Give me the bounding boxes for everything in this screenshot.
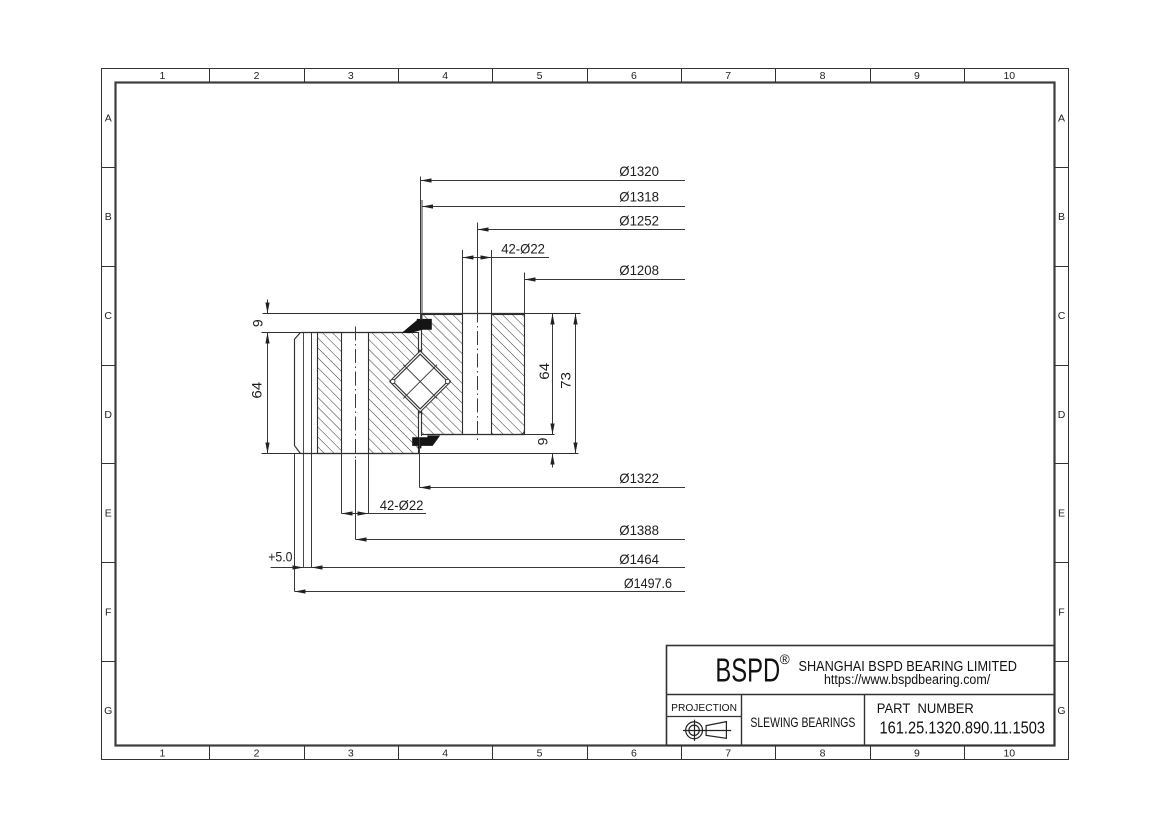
svg-text:64: 64 — [536, 363, 552, 380]
svg-text:BSPD: BSPD — [715, 653, 780, 690]
svg-text:C: C — [104, 310, 112, 322]
svg-text:2: 2 — [254, 748, 260, 760]
svg-text:1: 1 — [159, 70, 165, 82]
svg-text:161.25.1320.890.11.1503: 161.25.1320.890.11.1503 — [880, 717, 1046, 737]
svg-text:Ø1322: Ø1322 — [619, 470, 659, 486]
svg-text:PART NUMBER: PART NUMBER — [877, 701, 974, 717]
svg-text:+5.0: +5.0 — [268, 549, 292, 565]
svg-text:10: 10 — [1003, 70, 1015, 82]
svg-text:A: A — [1058, 112, 1065, 124]
svg-text:F: F — [1058, 606, 1064, 618]
svg-text:E: E — [1058, 508, 1065, 520]
svg-text:5: 5 — [537, 748, 543, 760]
svg-text:Ø1464: Ø1464 — [619, 551, 659, 567]
svg-text:5: 5 — [537, 70, 543, 82]
svg-text:8: 8 — [820, 748, 826, 760]
svg-text:9: 9 — [914, 70, 920, 82]
svg-text:B: B — [105, 211, 112, 223]
svg-text:3: 3 — [348, 748, 354, 760]
svg-text:7: 7 — [725, 70, 731, 82]
svg-text:9: 9 — [250, 319, 266, 327]
svg-text:Ø1320: Ø1320 — [619, 163, 659, 179]
svg-text:D: D — [1058, 409, 1066, 421]
svg-text:64: 64 — [249, 382, 265, 399]
svg-text:F: F — [105, 606, 111, 618]
svg-text:2: 2 — [254, 70, 260, 82]
svg-text:6: 6 — [631, 748, 637, 760]
svg-text:PROJECTION: PROJECTION — [671, 703, 737, 714]
svg-text:Ø1208: Ø1208 — [619, 262, 659, 278]
svg-text:D: D — [104, 409, 112, 421]
svg-text:Ø1388: Ø1388 — [619, 522, 659, 538]
svg-text:6: 6 — [631, 70, 637, 82]
svg-text:73: 73 — [558, 372, 574, 389]
svg-text:A: A — [105, 112, 112, 124]
svg-text:4: 4 — [442, 748, 448, 760]
svg-text:C: C — [1058, 310, 1066, 322]
svg-text:4: 4 — [442, 70, 448, 82]
svg-text:Ø1252: Ø1252 — [619, 212, 659, 228]
svg-text:42-Ø22: 42-Ø22 — [501, 241, 545, 257]
svg-text:B: B — [1058, 211, 1065, 223]
svg-text:Ø1497.6: Ø1497.6 — [624, 575, 672, 591]
svg-text:9: 9 — [914, 748, 920, 760]
svg-text:3: 3 — [348, 70, 354, 82]
svg-text:G: G — [104, 705, 112, 717]
svg-text:®: ® — [780, 652, 790, 667]
svg-text:42-Ø22: 42-Ø22 — [380, 497, 424, 513]
svg-text:7: 7 — [725, 748, 731, 760]
svg-text:8: 8 — [820, 70, 826, 82]
svg-text:1: 1 — [159, 748, 165, 760]
svg-text:Ø1318: Ø1318 — [619, 189, 659, 205]
svg-text:10: 10 — [1003, 748, 1015, 760]
svg-text:9: 9 — [535, 437, 551, 445]
svg-text:SLEWING BEARINGS: SLEWING BEARINGS — [750, 714, 855, 730]
svg-text:https://www.bspdbearing.com/: https://www.bspdbearing.com/ — [824, 672, 990, 688]
svg-text:E: E — [105, 508, 112, 520]
svg-text:G: G — [1057, 705, 1065, 717]
